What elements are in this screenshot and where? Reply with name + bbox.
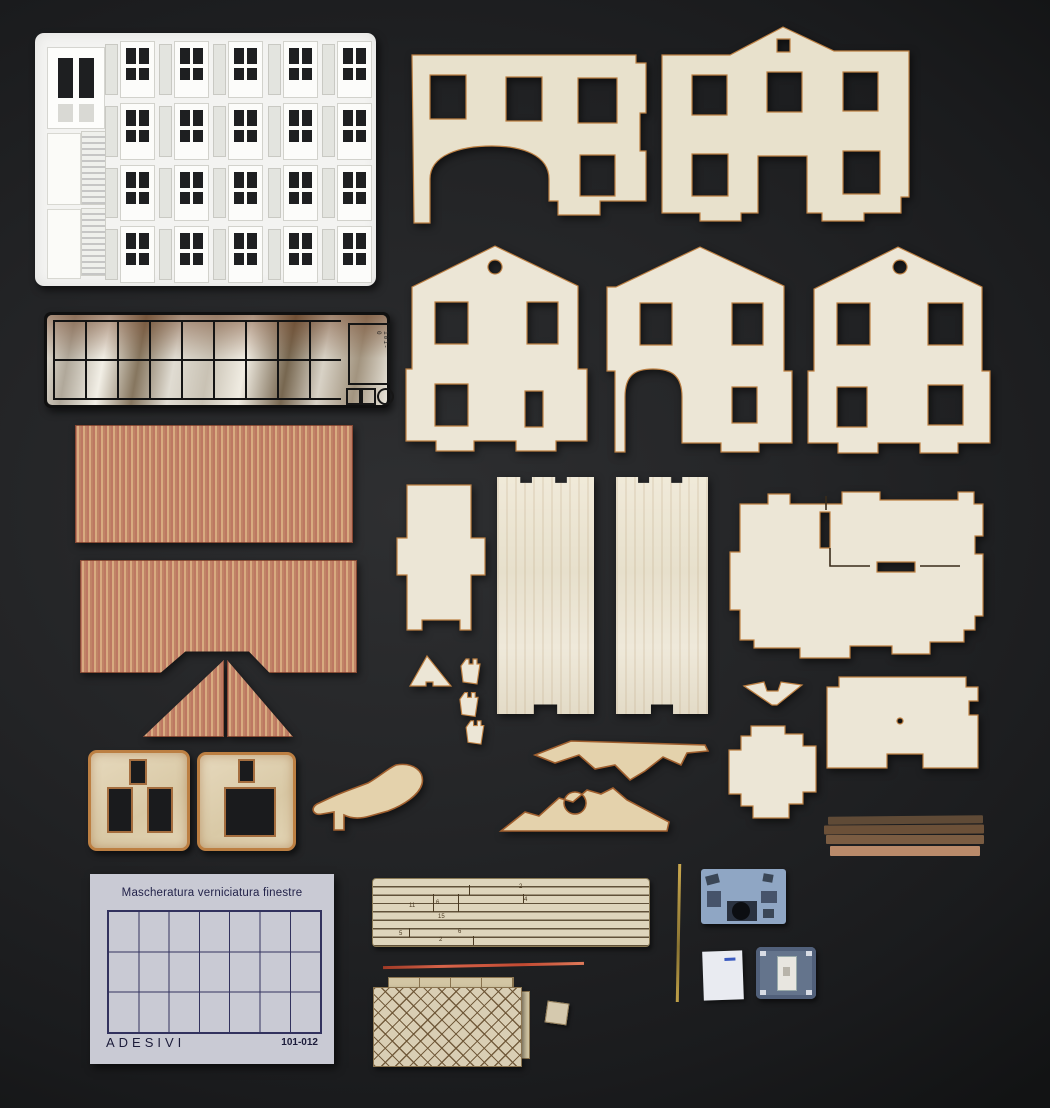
decal-emblem [725,981,734,991]
decal-mark [708,969,718,972]
glazing-small-pane [346,388,361,405]
strip-divider [433,894,434,912]
tab [806,951,812,956]
timber-stick [828,815,983,825]
timber-sticks [824,816,986,860]
notched-panel [827,677,978,768]
gable-wall-2 [607,245,794,453]
etched-window-part [213,165,262,220]
tab [760,990,766,995]
strip-number: 5 [399,931,402,937]
base-plate [730,490,983,665]
door-panel [58,104,73,122]
etched-window-part [159,165,208,220]
strip-divider [458,894,459,912]
strip-divider [469,885,470,895]
roof-support-chevron [742,682,804,706]
etched-window-part [268,41,317,96]
strip-number: 4 [524,897,527,903]
castellation-strip-1 [459,657,481,686]
etched-window-part [105,103,154,158]
decal-sheet [702,950,744,1000]
floor-plank-2 [616,477,708,714]
etched-window-part [322,226,371,281]
glazing-pane-grid [53,320,341,400]
strip-number: 11 [409,903,415,909]
decal-mark [725,969,735,972]
wall-front-gabled [662,25,909,221]
etched-door-part [47,47,105,129]
pediment-lower [499,783,671,833]
tab [806,990,812,995]
etched-window-part [105,41,154,96]
decal-mark [708,959,718,962]
trim-strip-sheet: 2 4 11 6 15 5 6 2 [372,878,650,947]
brass-wire [676,864,681,1002]
etched-window-grid [105,41,371,281]
wall-front-arched [402,53,646,223]
castellation-strip-2 [458,690,479,719]
strip-number: 6 [436,900,439,906]
floor-plank-1 [497,477,594,714]
masking-sheet-title: Mascheratura verniciatura finestre [90,887,334,899]
etched-small-part [707,891,721,907]
dormer-wall-right [197,752,296,851]
door-pane [58,58,73,98]
etched-window-part [105,226,154,281]
gable-wall-1 [404,243,589,453]
strip-number: 6 [458,929,461,935]
etched-window-part [322,103,371,158]
decal-mark [724,958,735,961]
etched-window-part [159,226,208,281]
strip-number: 2 [439,937,442,943]
slot-opening [240,761,253,781]
etched-window-part [268,165,317,220]
etched-blank-part [47,133,81,205]
decal-emblem [709,981,718,991]
small-gable-triangle [410,655,452,688]
timber-stick [830,846,980,856]
glazing-sheet: 101-0 [44,312,390,408]
roof-tile-sheet-large [75,425,353,543]
window-opening [149,789,171,831]
etched-window-part [159,41,208,96]
masking-sheet-footer-right: 101-012 [281,1037,318,1048]
chimney-piece [397,483,485,631]
masking-sheet-footer-left: ADESIVI [106,1035,185,1050]
eave-bracket [310,762,430,834]
small-square-part [545,1001,570,1026]
etched-door-blue [756,947,816,999]
etched-round-part [732,902,750,920]
model-kit-photo: 101-0 [0,0,1050,1108]
etched-window-part [105,165,154,220]
etched-detail-fret-blue [701,869,786,924]
glazing-film: 101-0 [47,315,387,405]
castellation-strip-3 [464,719,485,746]
etched-dark-panel [726,871,758,899]
dormer-wall-left [88,750,190,851]
strip-number: 15 [438,914,445,920]
timber-stick [824,824,984,834]
glazing-round-pane [377,388,394,405]
etched-window-part [268,226,317,281]
etched-window-part [322,165,371,220]
etched-window-part [322,41,371,96]
etched-window-part [213,226,262,281]
etched-small-part [705,874,720,886]
etched-small-part [762,873,773,883]
etched-window-part [268,103,317,158]
window-opening [109,789,131,831]
window-opening [226,789,274,835]
strip-number: 2 [519,884,522,890]
lattice-sheet [373,987,522,1067]
photo-etched-window-sheet [35,33,376,286]
etched-ladder-strip [81,208,106,276]
pediment-upper [535,741,711,783]
etched-window-part [213,103,262,158]
glazing-small-pane [361,388,376,405]
tab [760,951,766,956]
etched-blank-part [47,209,81,279]
door-pane [79,58,94,98]
slot-opening [131,761,145,783]
timber-stick [826,835,984,844]
roof-tile-sheet-notched [80,560,357,673]
etched-small-part [763,909,774,918]
chimney-cap [729,726,816,818]
etched-small-part [761,891,777,903]
masking-grid [107,910,322,1034]
masking-sheet: Mascheratura verniciatura finestre ADESI… [90,874,334,1064]
etched-window-part [213,41,262,96]
etched-ladder-strip [81,131,106,205]
strip-divider [409,928,410,937]
strip-divider [473,936,474,945]
etched-window-part [159,103,208,158]
door-panel [79,104,94,122]
gable-wall-3 [806,245,994,453]
copper-wire [383,962,584,969]
door-detail [783,967,790,976]
glazing-code: 101-0 [375,331,389,349]
